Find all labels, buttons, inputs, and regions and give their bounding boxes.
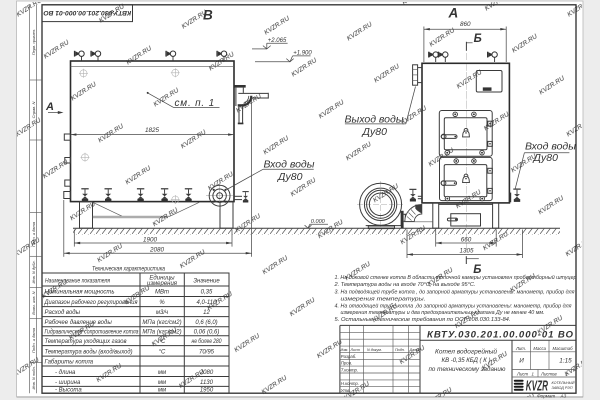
svg-text:Ду80: Ду80 (277, 171, 303, 183)
svg-text:КВ -0,35 КБД ( К ): КВ -0,35 КБД ( К ) (442, 357, 491, 364)
svg-text:А3: А3 (560, 394, 567, 399)
svg-text:МВт: МВт (155, 290, 169, 296)
svg-text:Перв. примен.: Перв. примен. (31, 29, 36, 56)
svg-text:Техническая характеристика: Техническая характеристика (92, 266, 165, 273)
svg-text:Формат: Формат (537, 394, 555, 399)
svg-text:МПа (кгс/см2): МПа (кгс/см2) (142, 330, 181, 336)
svg-text:Изм.: Изм. (341, 348, 349, 352)
svg-text:Н.контр.: Н.контр. (341, 381, 359, 386)
svg-text:Выход воды: Выход воды (345, 113, 404, 125)
svg-text:%: % (159, 300, 165, 306)
svg-text:2. Температура воды на входе: 2. Температура воды на входе 70°С, на вы… (334, 282, 476, 288)
svg-text:2080: 2080 (199, 370, 214, 376)
svg-text:КВТУ.030.201.00.000-01 ВО: КВТУ.030.201.00.000-01 ВО (43, 9, 131, 16)
svg-text:1950: 1950 (200, 388, 214, 394)
svg-text:4. На отводящей трубе котла ,: 4. На отводящей трубе котла ,до запорной… (335, 302, 572, 309)
svg-text:Подп. и дата: Подп. и дата (31, 221, 36, 247)
svg-text:Подп.: Подп. (395, 348, 405, 352)
svg-text:0.000: 0.000 (311, 219, 326, 225)
svg-text:4,0-110: 4,0-110 (197, 300, 218, 306)
svg-text:Рабочее давление воды: Рабочее давление воды (45, 320, 113, 326)
svg-text:Вход воды: Вход воды (525, 141, 576, 153)
svg-text:мм: мм (158, 370, 166, 376)
svg-text:Инв. N подл.: Инв. N подл. (31, 366, 36, 389)
svg-text:0,6 (6,0): 0,6 (6,0) (195, 320, 217, 326)
svg-text:измерения температуры.: измерения температуры. (341, 296, 426, 302)
svg-text:Утв.: Утв. (341, 388, 351, 393)
svg-text:Инв. N дубл.: Инв. N дубл. (31, 260, 36, 283)
svg-text:Лит.: Лит. (515, 346, 526, 351)
svg-text:КВТУ.030.201.00.000-01 ВО: КВТУ.030.201.00.000-01 ВО (427, 329, 574, 340)
svg-text:по техническому заданию: по техническому заданию (429, 366, 506, 373)
svg-text:1:15: 1:15 (559, 357, 572, 364)
svg-text:измерения температуры и два пр: измерения температуры и два предохраните… (341, 310, 545, 316)
svg-text:1900: 1900 (143, 236, 158, 243)
svg-text:Габариты котла: Габариты котла (45, 360, 94, 366)
svg-text:Листов: Листов (540, 371, 557, 376)
svg-text:Справ. N: Справ. N (31, 102, 36, 119)
svg-text:12: 12 (203, 310, 210, 316)
svg-text:860: 860 (460, 21, 471, 28)
svg-text:+1.900: +1.900 (293, 51, 312, 57)
svg-text:- Высота: - Высота (55, 388, 82, 394)
svg-text:Номинальная мощность: Номинальная мощность (45, 290, 115, 296)
svg-text:ЗАВОД РЭП: ЗАВОД РЭП (552, 386, 573, 390)
svg-text:А: А (45, 101, 54, 113)
svg-text:И: И (519, 357, 524, 364)
svg-text:- длина: - длина (55, 370, 76, 376)
svg-text:- ширина: - ширина (55, 380, 81, 386)
svg-text:мм: мм (158, 380, 166, 386)
svg-text:МПа (кгс/см2): МПа (кгс/см2) (142, 320, 181, 326)
svg-text:Ду80: Ду80 (533, 152, 559, 164)
svg-text:Лист: Лист (350, 348, 361, 352)
svg-text:0,06 (0,6): 0,06 (0,6) (194, 330, 220, 336)
svg-text:см. п. 1: см. п. 1 (175, 98, 215, 109)
svg-text:3. На подводящей трубе котла: 3. На подводящей трубе котла , до запорн… (335, 289, 575, 296)
svg-text:Гидравлическое сопротивление к: Гидравлическое сопротивление котла (45, 330, 140, 336)
svg-text:В: В (203, 8, 213, 23)
svg-text:°С: °С (159, 350, 166, 356)
svg-text:Взам. инв. N: Взам. инв. N (31, 291, 36, 314)
svg-text:1305: 1305 (459, 248, 474, 255)
svg-text:Б: Б (474, 33, 482, 45)
svg-text:Дата: Дата (409, 348, 420, 352)
svg-text:мм: мм (158, 388, 166, 394)
svg-text:Масштаб: Масштаб (552, 346, 573, 351)
svg-text:А: А (448, 6, 459, 21)
svg-text:Пров.: Пров. (341, 361, 352, 366)
svg-text:Т.контр.: Т.контр. (341, 367, 358, 372)
svg-text:Ду80: Ду80 (362, 126, 388, 138)
svg-text:Температура уходящих газов: Температура уходящих газов (45, 339, 127, 345)
svg-text:Котел водогрейный: Котел водогрейный (435, 348, 497, 356)
svg-text:Масса: Масса (533, 346, 546, 351)
svg-text:Значение: Значение (193, 279, 220, 285)
svg-text:2080: 2080 (149, 247, 165, 254)
svg-text:+2.065: +2.065 (268, 38, 287, 44)
svg-text:Расход воды: Расход воды (45, 310, 81, 316)
svg-text:1825: 1825 (145, 127, 160, 134)
svg-text:Подп. и дата: Подп. и дата (31, 327, 36, 353)
svg-text:N докум.: N докум. (367, 348, 382, 352)
svg-text:Температура воды (вход/выход): Температура воды (вход/выход) (45, 350, 133, 356)
svg-text:Наименование показателя: Наименование показателя (45, 279, 111, 285)
svg-text:Лист: Лист (516, 371, 528, 376)
svg-text:°С: °С (159, 339, 166, 345)
svg-text:1. На боковой стенке котла В: 1. На боковой стенке котла В области топ… (335, 274, 578, 281)
svg-text:КОТЕЛЬНЫЙ: КОТЕЛЬНЫЙ (552, 381, 575, 385)
svg-text:1130: 1130 (200, 380, 214, 386)
svg-text:0,35: 0,35 (201, 290, 213, 296)
svg-text:660: 660 (461, 236, 472, 243)
svg-text:м3/ч: м3/ч (156, 310, 168, 316)
svg-text:Вход воды: Вход воды (264, 158, 315, 170)
svg-text:не более 280: не более 280 (192, 339, 223, 345)
svg-text:Разраб.: Разраб. (341, 354, 357, 359)
svg-text:Диапазон рабочего регулировани: Диапазон рабочего регулирования (44, 300, 139, 306)
svg-text:измерения: измерения (147, 281, 178, 287)
svg-text:70/95: 70/95 (199, 350, 215, 356)
svg-text:5. Остальные технические треб: 5. Остальные технические требования по О… (335, 317, 511, 323)
svg-text:KVZR: KVZR (526, 377, 548, 394)
